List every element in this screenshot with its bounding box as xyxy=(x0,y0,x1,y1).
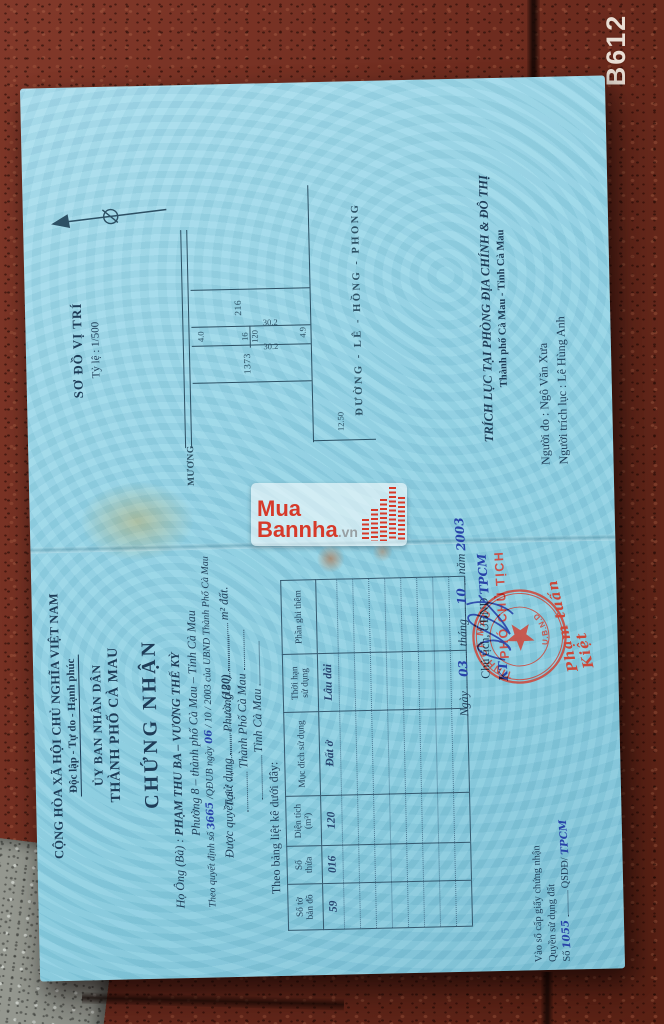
issuer-block: ỦY BAN NHÂN DÂN THÀNH PHỐ CÀ MAU xyxy=(86,530,128,921)
seal-arc-bottom-text: U.B.N.D xyxy=(530,609,554,647)
svg-text:U.B.N.D: U.B.N.D xyxy=(530,609,554,647)
location-city: Thành Phố Cà Mau xyxy=(234,673,250,768)
certificate-title: CHỨNG NHẬN xyxy=(135,529,167,919)
site-watermark: Mua Bannha.vn xyxy=(251,483,407,546)
street-line xyxy=(307,185,314,442)
col-parcel: Sốthửa xyxy=(287,846,323,885)
national-header: CỘNG HÒA XÃ HỘI CHỦ NGHĨA VIỆT NAM Độc l… xyxy=(45,531,85,922)
decision-number-handwritten: 3665 xyxy=(202,801,221,830)
plot-label-left: 1373 xyxy=(243,347,254,381)
dotted-leader xyxy=(558,891,569,917)
canal-line xyxy=(180,230,192,448)
street-dimension-label: 12.50 xyxy=(335,406,346,436)
col-notes: Phần ghi thêm xyxy=(281,580,318,655)
dotted-leader xyxy=(234,630,245,670)
north-arrow-icon xyxy=(43,171,176,264)
registry-suffix-handwritten: TPCM xyxy=(557,819,573,855)
registry-number-handwritten: 1055 xyxy=(559,919,575,949)
tile-grout-line xyxy=(82,992,344,1011)
plot-number: 16 xyxy=(240,326,249,348)
plot-divider xyxy=(191,287,310,291)
extract-block: TRÍCH LỤC TẠI PHÒNG ĐỊA CHÍNH & ĐÔ THỊ T… xyxy=(475,151,511,467)
location-ward: Phường 8 xyxy=(220,684,235,732)
dotted-leader xyxy=(222,735,233,781)
watermark-word2: Bannha xyxy=(257,517,338,542)
sketch-title: SƠ ĐỒ VỊ TRÍ xyxy=(68,265,88,435)
dotted-leader xyxy=(237,771,248,811)
dim-depth-right: 30.2 xyxy=(257,317,283,328)
sketch-scale: Tỷ lệ : 1/500 xyxy=(88,265,104,435)
dotted-leader xyxy=(219,635,230,681)
decision-day-handwritten: 06 xyxy=(201,729,218,744)
date-year-handwritten: 2003 xyxy=(452,517,468,551)
plot-label-right: 216 xyxy=(234,291,245,325)
surveyor-block: Người đo : Ngô Văn Xưa Người trích lục :… xyxy=(531,214,573,465)
canal-label: MƯƠNG xyxy=(186,450,197,486)
dim-depth-left: 30.2 xyxy=(258,341,284,352)
land-parcel-table: Số tờbản đồ Sốthửa Diện tích(m²) Mục đíc… xyxy=(280,576,473,931)
owner-name: PHẠM THU BA – VƯƠNG THẾ KỲ xyxy=(168,652,186,836)
street-label: ĐƯỜNG - LÊ - HỒNG - PHONG xyxy=(349,184,366,434)
dim-width-top: 4.0 xyxy=(195,324,206,350)
col-term: Thời hạnsử dụng xyxy=(282,654,318,713)
registry-number-line: Số 1055 QSDĐ/ TPCM xyxy=(556,781,575,961)
independence-line: Độc lập - Tự do - Hạnh phúc xyxy=(64,654,82,797)
paper-stain xyxy=(316,545,345,574)
col-area: Diện tích(m²) xyxy=(286,796,322,847)
photo-scene: B612 CỘNG HÒA XÃ HỘI CHỦ NGHĨA VIỆT NAM … xyxy=(0,0,664,1024)
dotted-leader xyxy=(250,641,261,685)
registry-block: Vào sổ cấp giấy chứng nhận Quyền sử dụng… xyxy=(529,781,575,962)
dotted-leader xyxy=(252,755,263,799)
watermark-tld: .vn xyxy=(338,524,358,540)
dim-width-bottom: 4.9 xyxy=(297,319,308,345)
plot-divider xyxy=(193,380,312,384)
col-map-sheet: Số tờbản đồ xyxy=(288,884,324,931)
seal-star-icon xyxy=(502,619,536,654)
street-dimension-line xyxy=(313,439,376,441)
location-block: Tại : Phường 8 Thành Phố Cà Mau Tỉnh Cà … xyxy=(216,546,269,895)
col-purpose: Mục đích sử dụng xyxy=(284,712,321,797)
location-province: Tỉnh Cà Mau xyxy=(250,688,265,752)
city-bars-icon xyxy=(362,487,405,541)
tile-grout-line xyxy=(541,972,553,1024)
sketch-title-block: SƠ ĐỒ VỊ TRÍ Tỷ lệ : 1/500 xyxy=(68,265,104,436)
location-label: Tại : xyxy=(222,784,237,807)
